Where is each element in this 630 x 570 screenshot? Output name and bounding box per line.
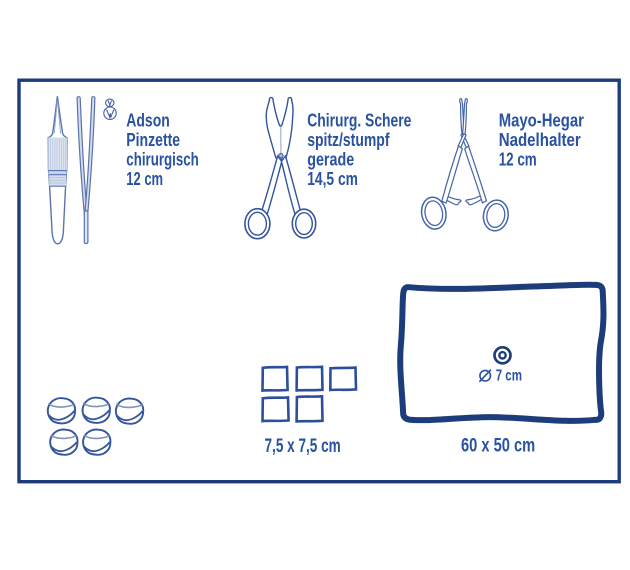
svg-text:Nadelhalter: Nadelhalter <box>499 130 581 150</box>
svg-text:chirurgisch: chirurgisch <box>126 149 199 169</box>
svg-text:gerade: gerade <box>307 149 354 169</box>
svg-text:12 cm: 12 cm <box>126 169 163 189</box>
svg-text:60 x 50 cm: 60 x 50 cm <box>461 435 535 457</box>
svg-text:7 cm: 7 cm <box>496 367 522 384</box>
svg-text:Adson: Adson <box>126 110 170 130</box>
svg-text:14,5 cm: 14,5 cm <box>307 169 358 189</box>
svg-text:spitz/stumpf: spitz/stumpf <box>307 130 390 150</box>
svg-text:Pinzette: Pinzette <box>126 130 180 150</box>
svg-text:7,5 x 7,5 cm: 7,5 x 7,5 cm <box>265 435 341 457</box>
svg-text:Mayo-Hegar: Mayo-Hegar <box>499 110 584 130</box>
svg-text:12 cm: 12 cm <box>499 149 537 169</box>
svg-text:Chirurg. Schere: Chirurg. Schere <box>307 110 411 130</box>
